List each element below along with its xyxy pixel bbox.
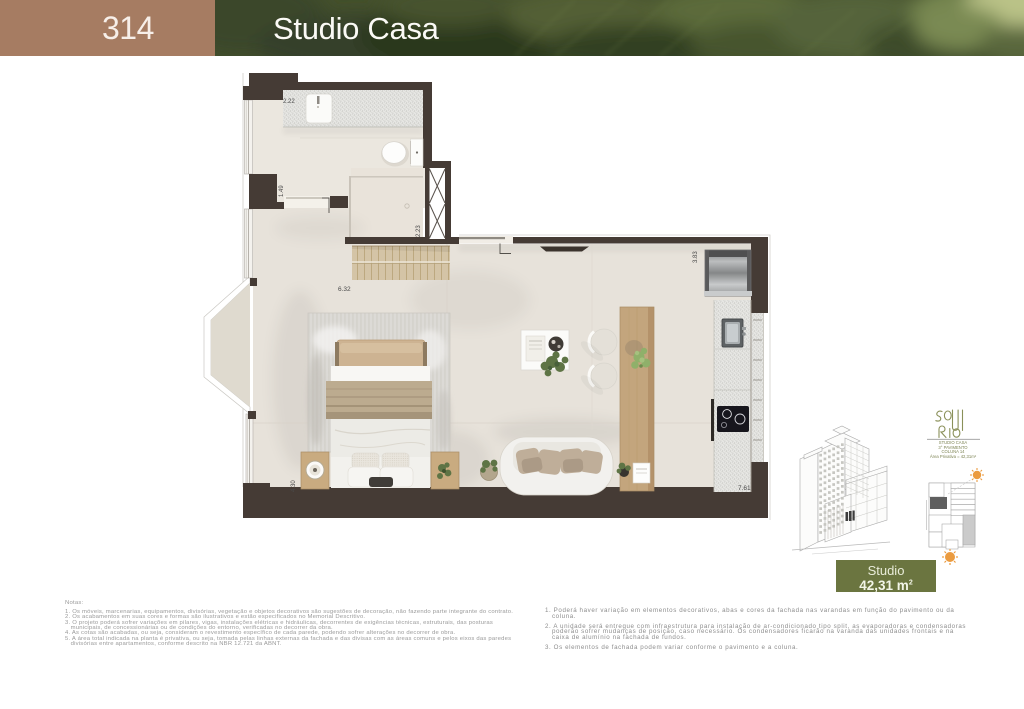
svg-text:2.23: 2.23: [416, 225, 422, 237]
svg-text:7.61: 7.61: [738, 485, 751, 492]
svg-text:4.30: 4.30: [291, 480, 297, 492]
svg-text:1.49: 1.49: [279, 185, 285, 197]
svg-text:6.32: 6.32: [338, 286, 351, 293]
svg-text:2.22: 2.22: [283, 99, 295, 105]
svg-text:3.83: 3.83: [693, 251, 699, 263]
